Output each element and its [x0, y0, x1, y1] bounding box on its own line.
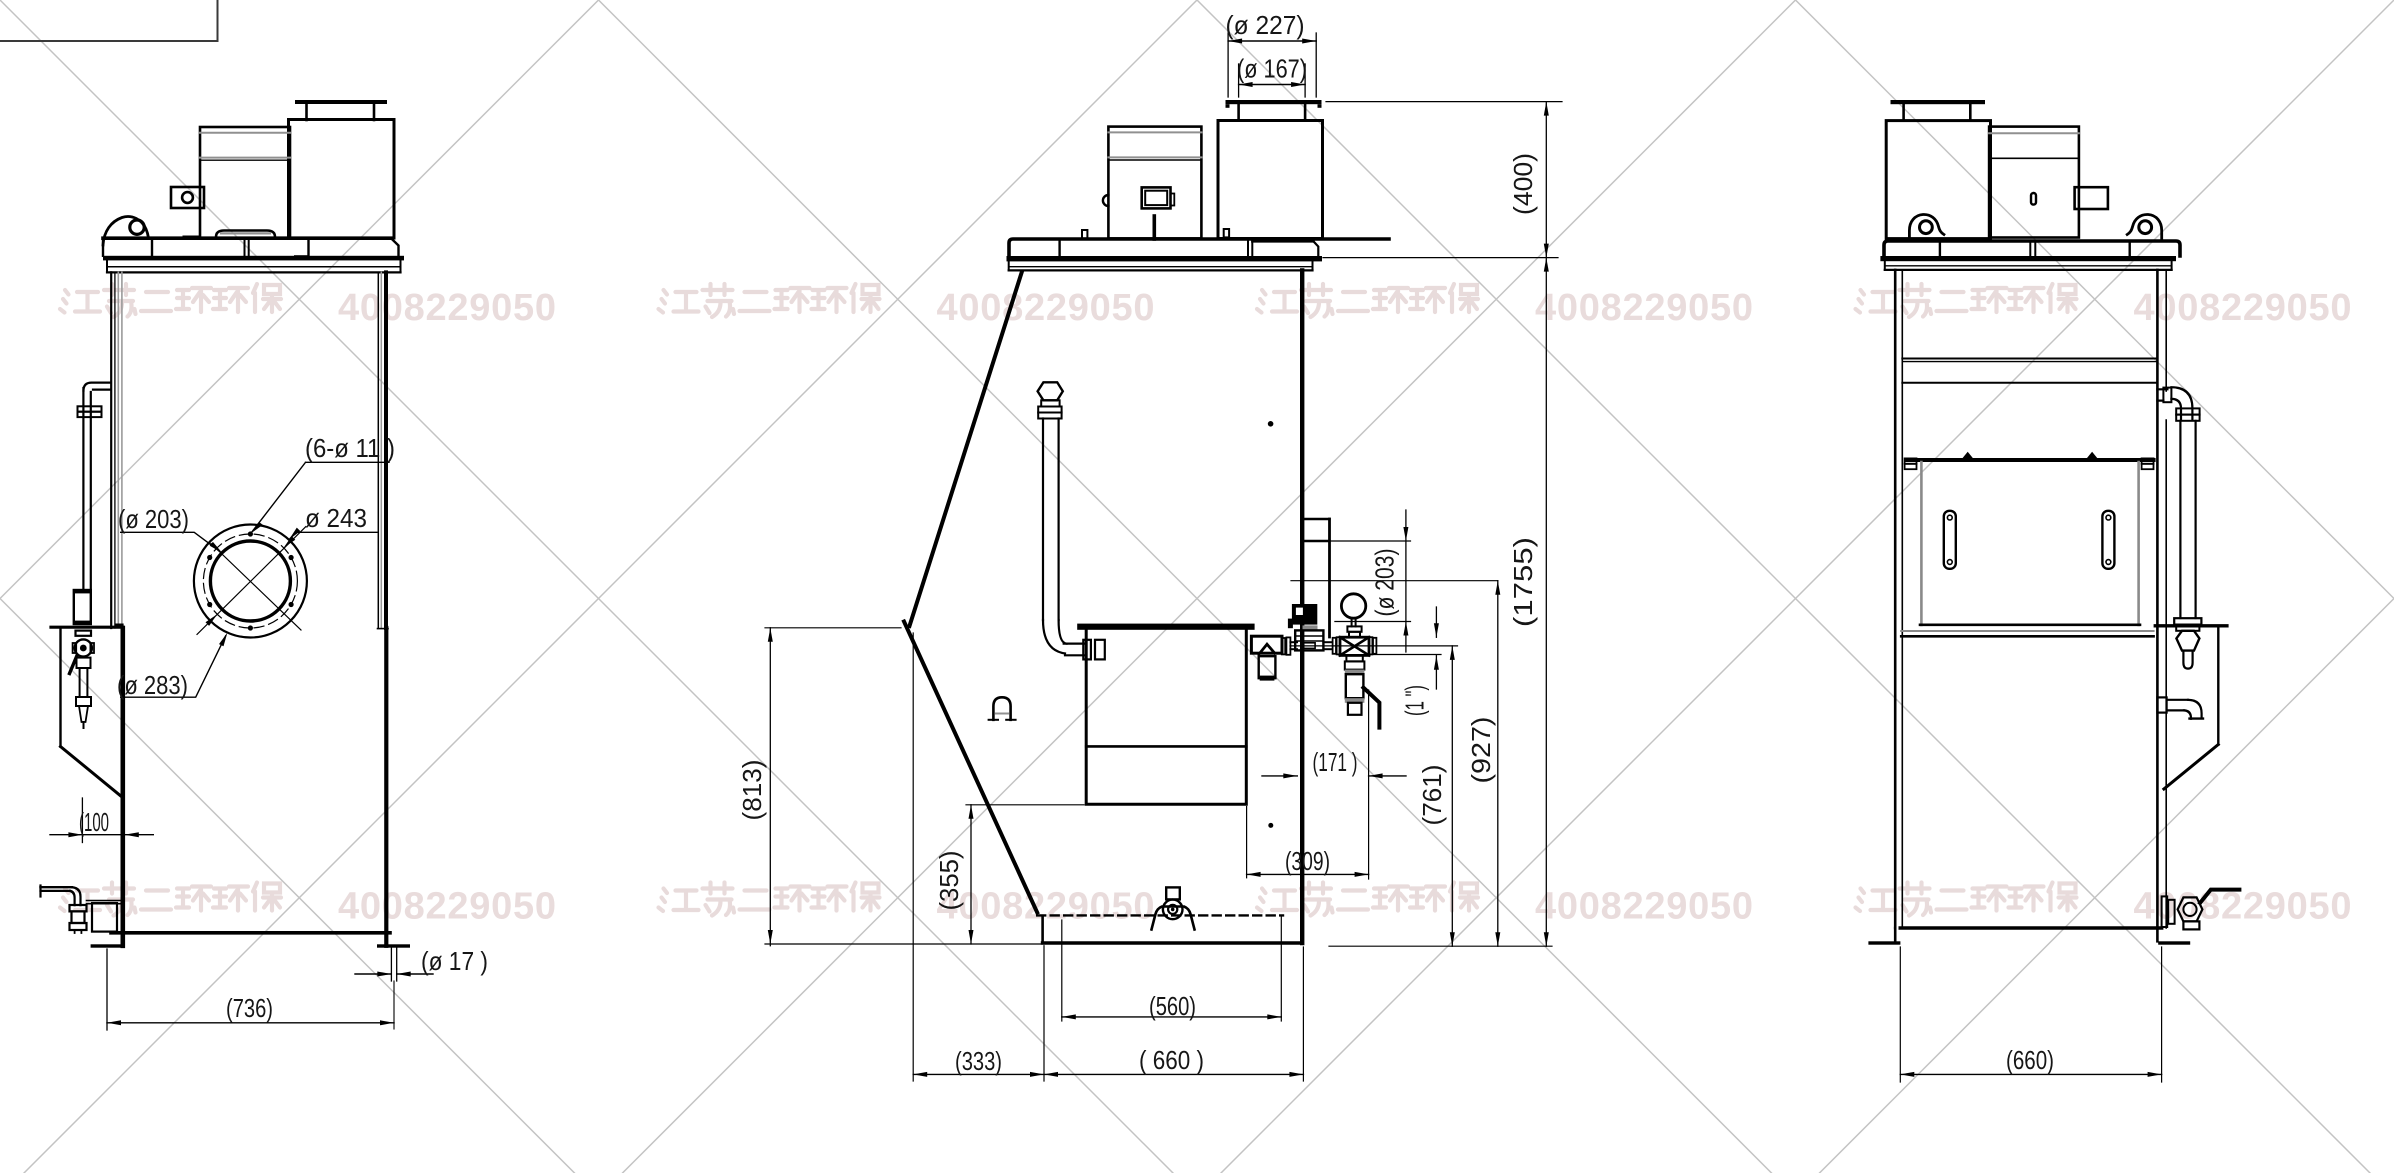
- svg-text:(ø 17 ): (ø 17 ): [421, 946, 488, 976]
- svg-text:(400): (400): [1508, 153, 1538, 215]
- svg-text:(1755): (1755): [1508, 537, 1538, 627]
- svg-text:(ø 283): (ø 283): [117, 670, 188, 700]
- svg-text:(6-ø 11 ): (6-ø 11 ): [305, 433, 395, 463]
- svg-text:ø 243: ø 243: [305, 503, 367, 533]
- svg-text:(355): (355): [934, 851, 964, 911]
- svg-text:4008229050: 4008229050: [1535, 886, 1753, 928]
- svg-text:(ø 203): (ø 203): [1370, 549, 1400, 617]
- svg-text:(100: (100: [79, 807, 109, 837]
- svg-text:( 660 ): ( 660 ): [1139, 1045, 1204, 1075]
- svg-text:4008229050: 4008229050: [1535, 287, 1753, 329]
- svg-text:(333): (333): [955, 1046, 1002, 1076]
- svg-text:(761): (761): [1417, 765, 1447, 826]
- svg-text:(560): (560): [1149, 991, 1196, 1021]
- svg-text:4008229050: 4008229050: [937, 886, 1155, 928]
- svg-text:(736): (736): [226, 993, 273, 1023]
- svg-text:4008229050: 4008229050: [937, 287, 1155, 329]
- svg-text:(927): (927): [1466, 717, 1496, 784]
- svg-text:(ø 203): (ø 203): [118, 504, 189, 534]
- svg-text:(ø 227): (ø 227): [1226, 10, 1305, 40]
- svg-text:(813): (813): [737, 760, 767, 821]
- svg-text:(ø 167): (ø 167): [1237, 54, 1307, 84]
- svg-text:4008229050: 4008229050: [338, 886, 556, 928]
- svg-text:(171 ): (171 ): [1313, 747, 1358, 777]
- svg-text:4008229050: 4008229050: [338, 287, 556, 329]
- svg-text:(1 "): (1 "): [1400, 685, 1430, 716]
- svg-text:(309): (309): [1285, 846, 1330, 876]
- svg-text:(660): (660): [2006, 1045, 2054, 1075]
